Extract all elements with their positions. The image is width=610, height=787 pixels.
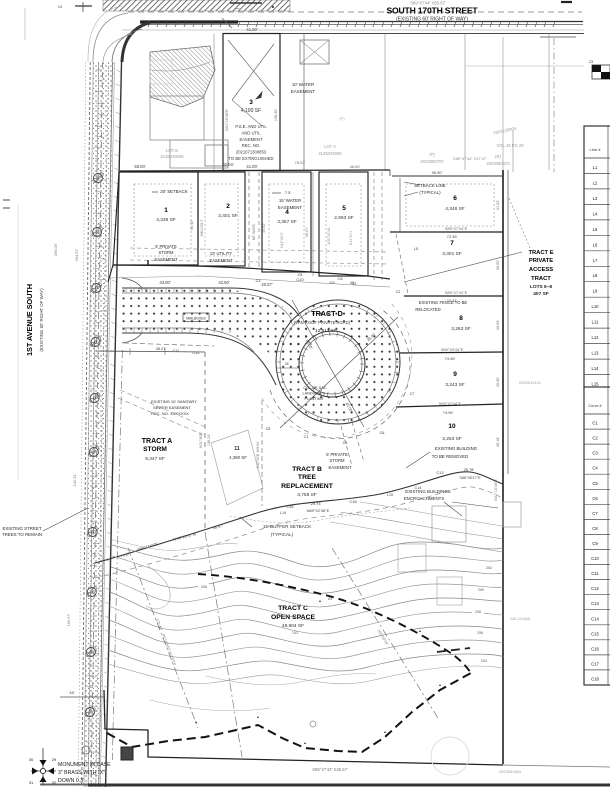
svg-text:AND UTIL: AND UTIL	[241, 130, 261, 135]
svg-text:31: 31	[29, 780, 34, 785]
svg-text:DOWN 0.3': DOWN 0.3'	[58, 778, 84, 784]
svg-text:PRIVATE: PRIVATE	[529, 258, 553, 264]
svg-text:15' BUFFER SETBACK: 15' BUFFER SETBACK	[263, 524, 312, 529]
svg-text:10' UTILITY: 10' UTILITY	[210, 251, 232, 256]
svg-text:S89°47'44" 237.97': S89°47'44" 237.97'	[453, 156, 487, 161]
svg-text:C8: C8	[337, 276, 343, 281]
svg-text:SEWER EASEMENT: SEWER EASEMENT	[153, 405, 191, 410]
svg-text:23: 23	[352, 282, 356, 286]
svg-text:C18: C18	[591, 677, 599, 682]
svg-text:LANDSCAPE: LANDSCAPE	[302, 392, 325, 396]
svg-text:N01°15'48"E: N01°15'48"E	[225, 109, 229, 131]
svg-text:▲: ▲	[418, 629, 421, 633]
svg-text:TRACT: TRACT	[531, 276, 551, 282]
svg-text:ACCESS: ACCESS	[529, 267, 553, 273]
svg-text:4,346 SF: 4,346 SF	[445, 206, 465, 212]
svg-text:C1: C1	[592, 421, 598, 426]
svg-text:12,613 SF: 12,613 SF	[315, 328, 337, 334]
svg-text:92.04': 92.04'	[222, 162, 233, 167]
svg-text:C2: C2	[396, 290, 401, 294]
svg-text:L13: L13	[592, 351, 600, 356]
svg-text:2,993 SF: 2,993 SF	[334, 215, 354, 221]
svg-text:10' WATER: 10' WATER	[292, 82, 314, 87]
svg-text:C5: C5	[298, 273, 303, 277]
svg-text:▲: ▲	[318, 599, 321, 603]
svg-text:C5: C5	[266, 427, 271, 431]
svg-text:L6: L6	[593, 242, 598, 247]
svg-text:46.60': 46.60'	[350, 164, 361, 169]
svg-text:(R): (R)	[495, 154, 501, 159]
svg-text:L3: L3	[593, 196, 598, 201]
svg-text:L11: L11	[592, 320, 599, 325]
svg-text:7.5': 7.5'	[285, 190, 292, 195]
svg-text:(TYPICAL): (TYPICAL)	[271, 532, 294, 537]
svg-text:RELOCATED: RELOCATED	[415, 307, 440, 312]
svg-text:TREES TO REMAIN: TREES TO REMAIN	[2, 532, 42, 537]
svg-text:LOT B: LOT B	[166, 148, 178, 153]
svg-text:265.06': 265.06'	[53, 243, 58, 256]
svg-text:98.07': 98.07'	[305, 227, 309, 237]
svg-text:254: 254	[481, 659, 487, 663]
svg-text:L14: L14	[280, 511, 286, 515]
svg-text:5' PRIVATE: 5' PRIVATE	[155, 244, 177, 249]
svg-text:4,100 SF: 4,100 SF	[241, 108, 261, 114]
svg-text:(VAN ROOF PRIVATE ROAD): (VAN ROOF PRIVATE ROAD)	[294, 320, 351, 325]
svg-text:TRACT B: TRACT B	[292, 466, 322, 473]
svg-text:3: 3	[249, 99, 253, 106]
svg-text:138.29': 138.29'	[207, 434, 211, 447]
svg-text:L14: L14	[592, 366, 600, 371]
svg-text:1ST AVENUE SOUTH: 1ST AVENUE SOUTH	[25, 284, 34, 356]
svg-text:N11°20'4": N11°20'4"	[280, 231, 284, 247]
svg-text:EASEMENT: EASEMENT	[154, 257, 177, 262]
svg-text:10: 10	[58, 4, 63, 9]
svg-text:2023080370: 2023080370	[486, 161, 510, 166]
svg-text:REC. NO.: REC. NO.	[242, 143, 261, 148]
svg-text:MAILBOXES: MAILBOXES	[186, 317, 206, 321]
svg-text:6: 6	[453, 195, 457, 202]
svg-text:C9: C9	[592, 541, 598, 546]
svg-text:2023080707: 2023080707	[420, 159, 444, 164]
svg-text:8: 8	[459, 315, 463, 322]
svg-text:4,390 SF: 4,390 SF	[229, 455, 247, 460]
svg-text:EASEMENT: EASEMENT	[239, 137, 262, 142]
svg-text:MONUMENT IN CASE: MONUMENT IN CASE	[58, 762, 111, 768]
svg-text:74.96': 74.96'	[443, 410, 454, 415]
svg-text:40.00': 40.00'	[496, 377, 500, 388]
svg-text:25.78': 25.78'	[464, 468, 475, 472]
svg-text:240.1218(4): 240.1218(4)	[510, 617, 531, 621]
svg-text:L2: L2	[593, 180, 598, 185]
svg-text:C3: C3	[592, 451, 598, 456]
svg-text:STORM: STORM	[158, 250, 174, 255]
svg-text:TRACT C: TRACT C	[278, 605, 308, 612]
svg-text:TRACT D: TRACT D	[311, 309, 343, 318]
svg-text:266: 266	[201, 585, 207, 589]
svg-text:C17: C17	[591, 661, 599, 666]
svg-text:2: 2	[226, 203, 230, 210]
svg-text:C10: C10	[296, 277, 304, 282]
svg-text:9,347 SF: 9,347 SF	[145, 456, 165, 462]
svg-text:C9: C9	[329, 280, 335, 285]
svg-text:264.97': 264.97'	[74, 248, 79, 261]
svg-text:L7: L7	[593, 258, 598, 263]
svg-text:41.00': 41.00'	[246, 164, 257, 169]
svg-text:S89°40'44"E: S89°40'44"E	[441, 347, 464, 352]
svg-text:2125049056: 2125049056	[160, 154, 184, 159]
svg-text:TO BE REMOVED: TO BE REMOVED	[432, 454, 469, 459]
svg-text:260: 260	[478, 588, 484, 592]
svg-text:EXISTING BUILDING: EXISTING BUILDING	[435, 446, 478, 451]
svg-text:REPLACEMENT: REPLACEMENT	[281, 483, 334, 490]
svg-text:REC. NO. XXXXXXX: REC. NO. XXXXXXX	[151, 411, 189, 416]
svg-text:3,263 SF: 3,263 SF	[451, 326, 471, 332]
svg-text:L1: L1	[593, 165, 598, 170]
svg-text:EASEMENT: EASEMENT	[278, 205, 302, 210]
svg-text:20.07': 20.07'	[261, 282, 272, 287]
svg-text:L8: L8	[593, 273, 598, 278]
svg-text:(P): (P)	[429, 152, 435, 157]
svg-text:C8: C8	[592, 526, 598, 531]
svg-text:42.50': 42.50'	[218, 280, 229, 285]
svg-text:▲: ▲	[303, 741, 306, 745]
svg-text:MELHOLT: MELHOLT	[200, 219, 204, 237]
svg-text:3" BRASS WITH "X": 3" BRASS WITH "X"	[58, 770, 105, 776]
svg-text:256: 256	[477, 631, 483, 635]
svg-text:2023041854: 2023041854	[499, 769, 522, 774]
svg-text:TRACT E: TRACT E	[528, 250, 553, 256]
svg-text:—: —	[235, 6, 240, 12]
svg-text:TO BE EXTINGUISHED: TO BE EXTINGUISHED	[228, 156, 273, 161]
svg-text:(EXISTING 60' RIGHT OF WAY): (EXISTING 60' RIGHT OF WAY)	[39, 288, 44, 352]
svg-text:72.35': 72.35'	[447, 234, 458, 239]
svg-text:SETBACK LINE: SETBACK LINE	[414, 183, 446, 188]
svg-text:72.41': 72.41'	[447, 298, 458, 303]
svg-text:74.96': 74.96'	[445, 356, 456, 361]
svg-text:PLANTING: PLANTING	[305, 397, 324, 401]
svg-text:▲: ▲	[256, 715, 259, 719]
svg-text:262: 262	[486, 566, 492, 570]
svg-text:N89°02'38"E: N89°02'38"E	[307, 508, 330, 513]
svg-text:C12: C12	[591, 586, 599, 591]
svg-text:3,243 SF: 3,243 SF	[445, 382, 465, 388]
svg-text:41.02': 41.02'	[496, 200, 500, 211]
svg-text:24': 24'	[285, 362, 290, 366]
svg-text:139.30': 139.30'	[274, 109, 278, 122]
svg-text:EXISTING 10' SANITARY: EXISTING 10' SANITARY	[151, 399, 197, 404]
svg-text:C10: C10	[591, 556, 599, 561]
svg-text:STORM: STORM	[143, 446, 167, 453]
svg-text:7: 7	[450, 240, 454, 247]
svg-text:LOTS 6–8: LOTS 6–8	[530, 284, 552, 290]
svg-text:C13: C13	[591, 601, 599, 606]
svg-text:2021071300853: 2021071300853	[236, 150, 267, 155]
svg-text:258: 258	[475, 610, 481, 614]
svg-text:3,357 SF: 3,357 SF	[277, 219, 297, 225]
svg-text:C16: C16	[591, 646, 599, 651]
svg-text:L5: L5	[414, 247, 418, 251]
svg-text:S89°47'44"E: S89°47'44"E	[445, 226, 468, 231]
svg-text:3,401 SF: 3,401 SF	[218, 213, 238, 219]
svg-text:ENCROACHMENTS: ENCROACHMENTS	[404, 496, 445, 501]
svg-text:L4: L4	[593, 211, 598, 216]
svg-text:45.02': 45.02'	[262, 223, 266, 233]
svg-text:C6: C6	[592, 496, 598, 501]
svg-text:3,301 SF: 3,301 SF	[442, 251, 462, 257]
svg-text:2923019101: 2923019101	[519, 380, 542, 385]
svg-text:32: 32	[52, 780, 57, 785]
svg-text:75.57': 75.57'	[295, 160, 306, 165]
svg-text:TREE: TREE	[298, 474, 317, 481]
svg-text:Curve #: Curve #	[588, 404, 602, 408]
svg-text:EASEMENT: EASEMENT	[291, 89, 315, 94]
svg-text:▲: ▲	[438, 683, 441, 687]
svg-text:40.00': 40.00'	[496, 320, 500, 331]
svg-text:142.31': 142.31'	[72, 473, 77, 486]
svg-text:L10: L10	[592, 304, 600, 309]
svg-text:98.18': 98.18'	[190, 220, 194, 230]
svg-text:C11: C11	[591, 571, 599, 576]
svg-text:C3: C3	[256, 279, 261, 283]
svg-text:96.90': 96.90'	[432, 170, 443, 175]
svg-text:S89°47'44" 545.57': S89°47'44" 545.57'	[312, 767, 348, 772]
svg-text:407 SF: 407 SF	[533, 291, 549, 297]
svg-text:4,336 SF: 4,336 SF	[156, 217, 176, 223]
svg-text:C15: C15	[287, 505, 294, 509]
svg-text:41.00': 41.00'	[246, 27, 257, 32]
svg-text:9: 9	[453, 371, 457, 378]
svg-text:P.S.E. AND UTIL: P.S.E. AND UTIL	[235, 124, 267, 129]
svg-text:L12: L12	[592, 335, 600, 340]
svg-text:5' PRIVATE: 5' PRIVATE	[326, 452, 348, 457]
svg-text:L5: L5	[593, 227, 598, 232]
svg-text:S89°47'44"E: S89°47'44"E	[445, 290, 468, 295]
svg-text:▲: ▲	[194, 720, 197, 724]
svg-text:S88°45'17"E: S88°45'17"E	[459, 476, 481, 480]
svg-text:29.74': 29.74'	[311, 501, 322, 506]
svg-text:46.18': 46.18'	[496, 437, 500, 448]
svg-text:23: 23	[589, 60, 593, 64]
svg-text:11: 11	[234, 446, 240, 452]
svg-text:C7: C7	[410, 392, 415, 396]
svg-text:C4: C4	[592, 466, 598, 471]
svg-text:5: 5	[342, 205, 346, 212]
svg-text:56.00': 56.00'	[134, 164, 145, 169]
svg-text:C16: C16	[349, 499, 357, 504]
svg-text:4: 4	[285, 209, 289, 216]
svg-text:CUL-DE-SAC: CUL-DE-SAC	[303, 386, 326, 390]
svg-text:N11°20'4: N11°20'4	[349, 231, 353, 245]
svg-text:EXISTING FENCE TO BE: EXISTING FENCE TO BE	[419, 300, 468, 305]
svg-text:C15: C15	[591, 631, 599, 636]
svg-text:10: 10	[448, 423, 456, 430]
svg-text:3,253 SF: 3,253 SF	[442, 436, 462, 442]
svg-text:N11°20'4A: N11°20'4A	[327, 227, 331, 244]
svg-text:C5: C5	[592, 481, 598, 486]
svg-text:(TYPICAL): (TYPICAL)	[419, 190, 441, 195]
svg-text:EASEMENT: EASEMENT	[328, 465, 351, 470]
svg-text:29: 29	[52, 757, 57, 762]
svg-text:C11: C11	[173, 349, 180, 353]
svg-text:VOL 43 PG 29: VOL 43 PG 29	[496, 143, 524, 148]
svg-text:TRACT A: TRACT A	[142, 438, 172, 445]
svg-text:LOT A: LOT A	[324, 144, 336, 149]
svg-text:EXISTING BUILDINGS: EXISTING BUILDINGS	[405, 489, 450, 494]
svg-text:43.00': 43.00'	[159, 280, 170, 285]
svg-text:EASEMENT: EASEMENT	[209, 258, 232, 263]
svg-text:SOUTH 170TH STREET: SOUTH 170TH STREET	[387, 6, 479, 16]
svg-text:C6: C6	[380, 431, 385, 435]
svg-text:20' SETBACK: 20' SETBACK	[160, 189, 188, 194]
svg-text:185.87': 185.87'	[66, 613, 71, 626]
svg-text:C1: C1	[304, 435, 309, 439]
svg-text:C14: C14	[591, 616, 599, 621]
svg-text:L15: L15	[592, 382, 600, 387]
svg-text:(P): (P)	[339, 116, 345, 121]
svg-text:L15: L15	[387, 493, 393, 497]
svg-text:Line #: Line #	[590, 147, 602, 152]
svg-text:40.00': 40.00'	[496, 260, 500, 271]
svg-text:45': 45'	[69, 690, 74, 695]
svg-text:▲: ▲	[383, 730, 386, 734]
svg-text:EXISTING STREET: EXISTING STREET	[2, 526, 41, 531]
svg-text:STORM: STORM	[329, 458, 345, 463]
svg-text:3,755 SF: 3,755 SF	[297, 492, 317, 498]
svg-text:C13: C13	[437, 471, 444, 475]
svg-text:S89°47'44"E: S89°47'44"E	[439, 401, 462, 406]
svg-text:L9: L9	[593, 289, 598, 294]
svg-text:MT WATE: MT WATE	[252, 223, 256, 240]
svg-text:C2: C2	[592, 436, 598, 441]
svg-text:1: 1	[164, 207, 168, 214]
svg-text:30: 30	[29, 757, 34, 762]
svg-text:15' WATER: 15' WATER	[279, 198, 301, 203]
svg-text:N11°30'E 109.54: N11°30'E 109.54	[256, 442, 260, 469]
svg-text:C7: C7	[592, 511, 598, 516]
svg-text:2125049055: 2125049055	[318, 151, 342, 156]
